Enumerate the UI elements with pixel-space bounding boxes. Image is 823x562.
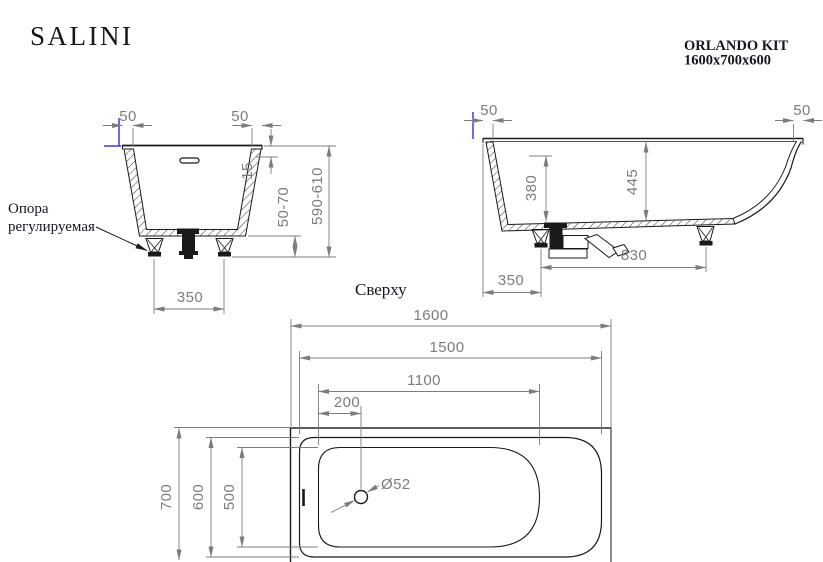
dim-side-feet-spacing: 830 <box>621 247 647 264</box>
technical-drawing: SALINI ORLANDO KIT 1600x700x600 <box>0 0 823 562</box>
front-foot-left <box>146 239 163 257</box>
dim-front-feet-spacing: 350 <box>177 289 203 306</box>
overflow-slot <box>180 158 199 163</box>
side-foot-left <box>532 230 549 248</box>
dim-front-foot-height: 50-70 <box>275 187 292 227</box>
dim-top-bottom-length: 1100 <box>407 372 441 389</box>
dim-top-rim-length: 1500 <box>430 339 465 356</box>
side-view: 50 50 380 445 830 350 <box>464 102 822 297</box>
side-foot-right <box>697 227 714 246</box>
header: SALINI ORLANDO KIT 1600x700x600 <box>30 21 789 69</box>
top-bottom-contour <box>319 448 540 548</box>
front-foot-right <box>216 239 233 257</box>
dim-front-overhang-right: 50 <box>231 108 249 125</box>
dim-top-drain-diameter: Ø52 <box>381 476 411 493</box>
top-view-label: Сверху <box>355 280 407 299</box>
top-view: Сверху 1600 1500 1100 200 <box>158 280 611 562</box>
side-back-curve-outer <box>735 142 802 225</box>
dim-front-rim-height: 15 <box>239 162 256 180</box>
dim-side-overhang-right: 50 <box>793 102 811 119</box>
dim-side-overall-depth: 445 <box>624 169 641 195</box>
dim-side-inner-depth: 380 <box>523 175 540 201</box>
side-view-dimensions: 50 50 380 445 830 350 <box>464 102 822 297</box>
dim-top-bottom-width: 500 <box>221 484 238 510</box>
support-callout: Опора регулируемая <box>8 201 147 251</box>
dim-top-drain-offset: 200 <box>334 394 360 411</box>
top-tub-outline <box>291 428 612 562</box>
top-inner-rim <box>300 438 602 558</box>
model-size: 1600x700x600 <box>684 53 771 69</box>
top-outer-rim <box>291 428 612 562</box>
dim-front-overall-height: 590-610 <box>309 167 326 225</box>
dim-top-overall-length: 1600 <box>414 307 449 324</box>
dim-top-rim-width: 600 <box>190 484 207 510</box>
dim-top-overall-width: 700 <box>158 484 175 510</box>
support-label-line1: Опора <box>8 201 49 217</box>
front-view: 50 50 15 50-70 590-610 350 <box>8 108 336 314</box>
dim-side-overhang-left: 50 <box>480 102 498 119</box>
dim-side-drain-offset: 350 <box>498 272 524 289</box>
top-view-dimensions: 1600 1500 1100 200 700 600 <box>158 307 611 562</box>
top-drain-hole <box>355 491 368 504</box>
front-drain-assembly <box>177 229 199 260</box>
support-label-line2: регулируемая <box>8 219 95 235</box>
dim-front-overhang-left: 50 <box>119 108 137 125</box>
brand-title: SALINI <box>30 21 134 51</box>
front-tub-section <box>104 118 262 259</box>
